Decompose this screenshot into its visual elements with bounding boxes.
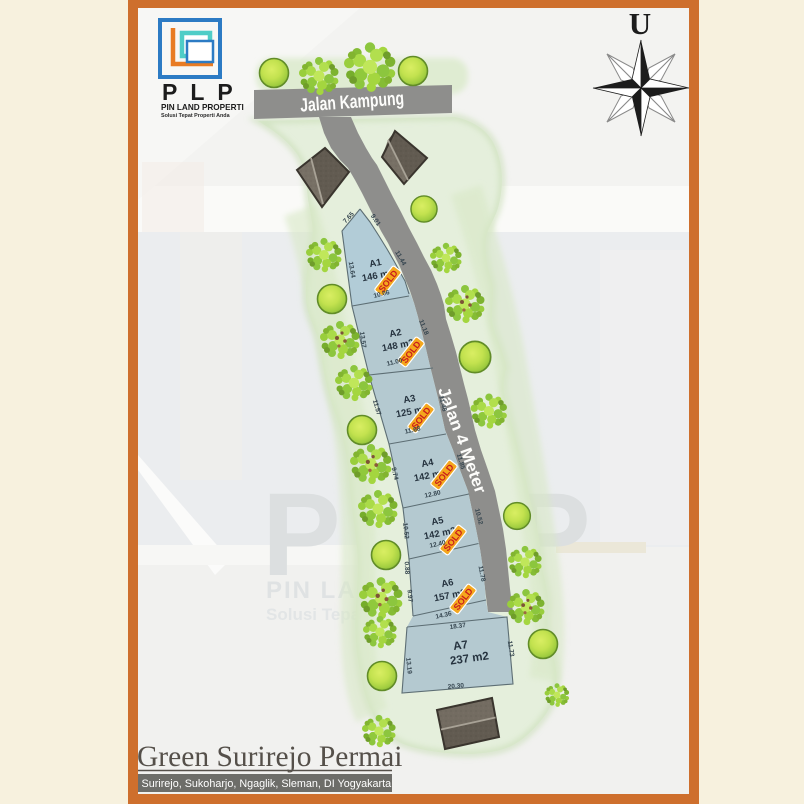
svg-text:A6: A6	[441, 577, 455, 590]
svg-text:0.88: 0.88	[403, 561, 411, 574]
svg-text:A7: A7	[452, 639, 468, 653]
svg-text:PLP: PLP	[162, 79, 246, 105]
svg-text:A3: A3	[403, 393, 417, 406]
svg-text:U: U	[629, 6, 651, 41]
svg-text:Solusi Tepat Properti Anda: Solusi Tepat Properti Anda	[161, 113, 231, 119]
svg-text:Surirejo, Sukoharjo, Ngaglik,: Surirejo, Sukoharjo, Ngaglik, Sleman, DI…	[142, 778, 392, 790]
svg-text:Green Surirejo Permai: Green Surirejo Permai	[137, 741, 402, 773]
svg-text:9.97: 9.97	[405, 589, 413, 603]
svg-text:A2: A2	[389, 327, 403, 340]
svg-text:20.30: 20.30	[447, 682, 464, 690]
svg-text:PIN LAND PROPERTI: PIN LAND PROPERTI	[161, 103, 244, 112]
